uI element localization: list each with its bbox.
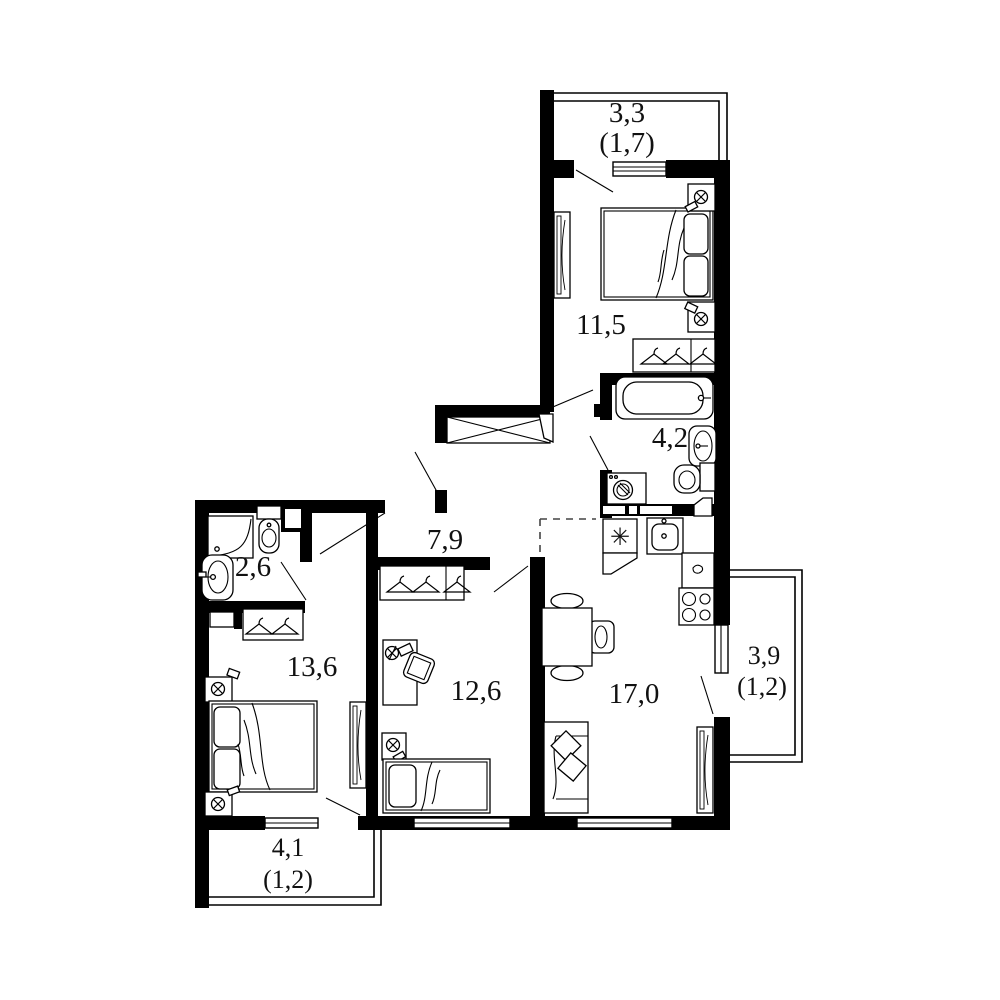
window-room-middle <box>414 818 510 828</box>
label-bedroom-right-area: 11,5 <box>576 309 626 341</box>
double-bed <box>209 701 317 792</box>
counter-top <box>603 506 625 514</box>
nightstand <box>205 668 240 702</box>
label-balcony-top-reduced: (1,7) <box>599 127 655 159</box>
kitchen-fixtures: ✳ <box>542 498 714 813</box>
wardrobe-tall <box>697 727 713 813</box>
kitchen-zone-dashed-boundary <box>540 519 596 557</box>
wall-segment <box>435 405 550 417</box>
wall-segment <box>530 557 545 816</box>
dining-table <box>542 608 592 666</box>
label-balcony-bottom-reduced: (1,2) <box>263 865 313 894</box>
pillow <box>389 765 416 807</box>
label-bathroom-large-area: 4,2 <box>652 422 688 454</box>
bathroom-sink <box>198 555 233 600</box>
wardrobe-hangers <box>633 339 716 372</box>
wall-segment <box>714 160 730 625</box>
kitchen-counter-2 <box>682 553 714 588</box>
wall-segment <box>435 490 447 513</box>
label-balcony-bottom-area: 4,1 <box>272 833 305 862</box>
window-kitchen-right <box>715 625 728 673</box>
label-hallway-area: 7,9 <box>427 524 463 556</box>
label-bathroom-small-area: 2,6 <box>235 551 271 583</box>
wardrobe-hangers <box>243 609 303 640</box>
pillow <box>214 749 240 789</box>
door-swing-bathroom-small <box>281 562 306 600</box>
double-bed <box>601 208 713 300</box>
pillow <box>684 214 708 254</box>
fridge: ✳ <box>603 519 637 553</box>
bathroom-sink <box>689 426 716 466</box>
ventilation-shaft-icon <box>447 417 550 443</box>
wall-segment <box>234 613 242 629</box>
bathtub <box>616 377 713 419</box>
wardrobe-tall <box>554 212 570 298</box>
label-bedroom-left-area: 13,6 <box>287 651 338 683</box>
lamp-icon <box>695 191 708 204</box>
toilet <box>674 463 715 493</box>
pillow <box>214 707 240 747</box>
lamp-icon <box>387 739 400 752</box>
chair <box>589 621 614 653</box>
bedroom-left-furniture <box>205 609 366 816</box>
door-swing-bathroom-large <box>590 436 608 470</box>
wall-segment <box>554 160 574 178</box>
window-kitchen-bottom <box>577 818 672 828</box>
kitchen-sink <box>647 518 683 554</box>
wall-segment <box>366 513 378 816</box>
door-swing-room-middle <box>494 566 528 592</box>
counter-top <box>640 506 672 514</box>
wall-segment <box>714 717 730 830</box>
wall-segment <box>358 816 370 830</box>
toilet <box>257 506 281 553</box>
window-bedroom-left <box>265 818 318 828</box>
label-balcony-top-area: 3,3 <box>609 97 645 129</box>
chair <box>551 594 583 609</box>
chair <box>551 666 583 681</box>
single-bed <box>383 759 490 813</box>
bedroom-right-furniture <box>554 184 716 372</box>
nightstand <box>382 733 406 762</box>
door-swing-kitchen-balcony <box>701 676 713 714</box>
corner-cabinet <box>694 498 712 516</box>
label-balcony-right-reduced: (1,2) <box>737 672 787 701</box>
label-room-middle-area: 12,6 <box>451 675 502 707</box>
fridge-snowflake-icon: ✳ <box>610 525 630 551</box>
window-bedroom-right-balcony <box>613 162 666 176</box>
duct-box <box>281 506 305 532</box>
door-swing-entrance <box>415 452 441 499</box>
floor-plan-canvas: ✳ <box>0 0 1000 1000</box>
label-balcony-right-area: 3,9 <box>748 641 781 670</box>
wardrobe-tall <box>350 702 366 788</box>
sofa <box>544 722 588 813</box>
stove <box>679 588 714 625</box>
door-swing-balcony-top <box>576 170 613 192</box>
lamp-icon <box>695 313 708 326</box>
nightstand <box>685 184 715 212</box>
counter-top <box>629 506 637 514</box>
nightstand <box>685 302 715 332</box>
pillow <box>684 256 708 296</box>
kitchen-counter <box>603 553 637 574</box>
wardrobe-hangers <box>380 566 470 600</box>
dining-table-set <box>542 594 614 681</box>
wall-segment <box>540 90 554 412</box>
lamp-icon <box>212 798 225 811</box>
cabinet <box>210 612 234 627</box>
label-kitchen-living-area: 17,0 <box>609 678 660 710</box>
washing-machine <box>607 473 646 504</box>
floor-plan: ✳ <box>0 0 1000 1000</box>
door-swing-bedroom-left-balcony <box>326 798 360 815</box>
lamp-icon <box>212 683 225 696</box>
